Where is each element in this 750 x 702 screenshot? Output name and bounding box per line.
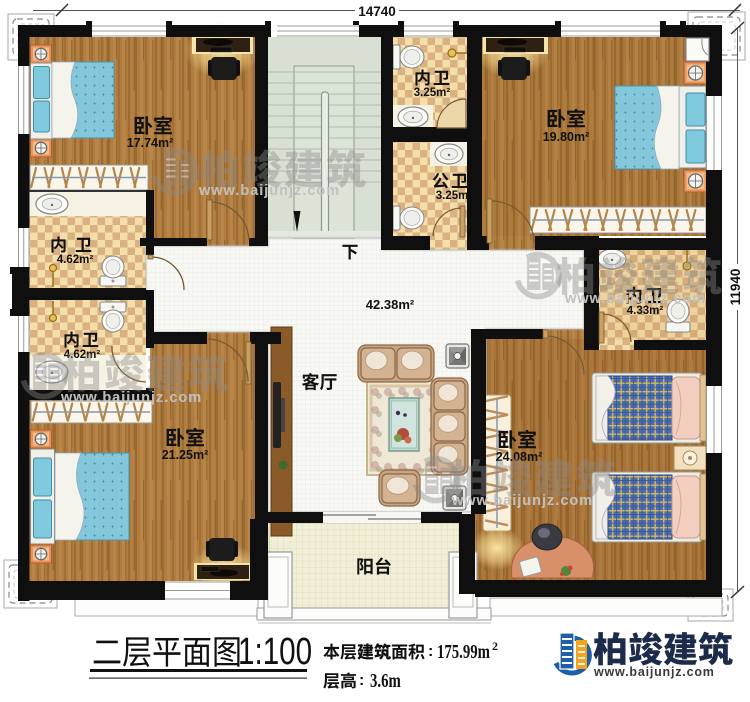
svg-text:4.62m²: 4.62m² (57, 254, 94, 266)
svg-text:19.80m²: 19.80m² (543, 130, 590, 144)
svg-text:1:100: 1:100 (238, 631, 312, 673)
svg-text::: : (359, 672, 364, 689)
svg-text:www.baijunjz.com: www.baijunjz.com (593, 665, 715, 679)
svg-text:21.25m²: 21.25m² (162, 448, 209, 462)
svg-text:2: 2 (492, 639, 498, 653)
svg-text:www.baijunjz.com: www.baijunjz.com (564, 291, 706, 307)
svg-text::: : (428, 643, 433, 660)
svg-text:3.25m²: 3.25m² (436, 190, 473, 202)
svg-text:3.25m²: 3.25m² (414, 87, 451, 99)
svg-text:www.baijunjz.com: www.baijunjz.com (451, 493, 593, 509)
svg-text:175.99m: 175.99m (437, 640, 490, 663)
svg-text:17.74m²: 17.74m² (127, 136, 174, 150)
svg-text:42.38m²: 42.38m² (366, 297, 415, 312)
svg-text:www.baijunjz.com: www.baijunjz.com (198, 183, 340, 199)
svg-text:3.6m: 3.6m (370, 669, 401, 692)
svg-text:14740: 14740 (358, 4, 396, 19)
svg-text:11940: 11940 (728, 269, 743, 306)
svg-text:www.baijunjz.com: www.baijunjz.com (60, 390, 202, 406)
